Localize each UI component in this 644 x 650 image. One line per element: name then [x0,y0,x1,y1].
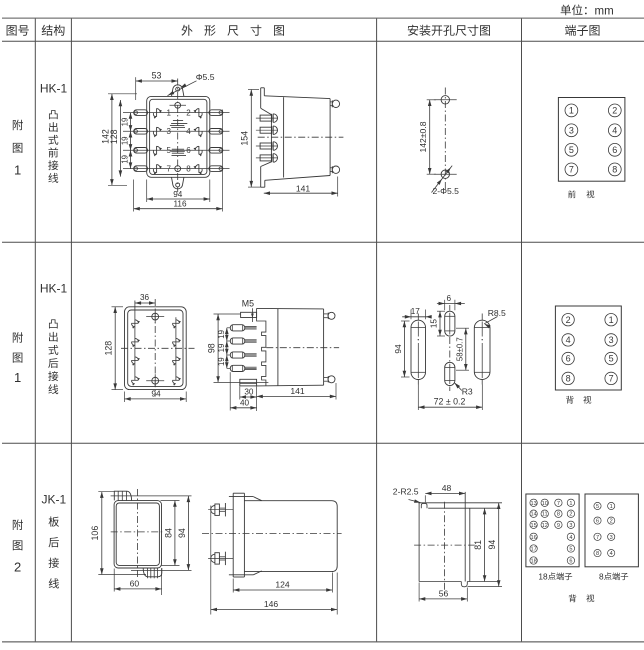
svg-text:58±0.7: 58±0.7 [455,337,464,361]
svg-text:2: 2 [612,106,617,116]
svg-text:1: 1 [610,504,613,510]
svg-text:94: 94 [151,389,161,399]
svg-text:141: 141 [290,386,305,396]
svg-text:48: 48 [442,483,452,493]
svg-text:128: 128 [109,129,119,144]
svg-text:12: 12 [542,523,548,529]
svg-text:2: 2 [610,519,613,525]
svg-text:3: 3 [609,335,614,345]
svg-text:HK-1: HK-1 [40,82,68,96]
svg-text:2-R2.5: 2-R2.5 [393,487,419,497]
svg-text:7: 7 [569,165,574,175]
svg-text:7: 7 [557,501,560,507]
svg-text:15: 15 [530,523,536,529]
svg-text:M5: M5 [242,299,254,309]
svg-text:116: 116 [173,199,186,208]
svg-text:2: 2 [566,315,571,325]
svg-text:3: 3 [610,535,613,541]
svg-text:16: 16 [530,535,536,541]
svg-text:13: 13 [530,501,536,507]
svg-text:7: 7 [609,374,614,384]
svg-text:36: 36 [140,293,150,302]
svg-text:5: 5 [596,504,599,510]
svg-text:1: 1 [14,162,21,177]
svg-text:1: 1 [569,501,572,507]
svg-text:17: 17 [411,307,421,316]
svg-text:94: 94 [177,528,187,538]
svg-text:124: 124 [275,580,290,590]
svg-text:1: 1 [569,106,574,116]
svg-text:1: 1 [609,315,614,325]
svg-text:8: 8 [566,374,571,384]
svg-text:5: 5 [569,145,574,155]
svg-text:4: 4 [569,535,572,541]
svg-text:18: 18 [538,571,548,581]
svg-text:1: 1 [166,109,171,118]
svg-text:19: 19 [121,118,130,127]
svg-text:19: 19 [121,155,130,164]
svg-text:40: 40 [240,399,250,408]
svg-text:2: 2 [14,559,21,574]
svg-text:3: 3 [569,523,572,529]
svg-text:128: 128 [104,341,114,356]
svg-text:19: 19 [217,330,226,339]
svg-text:72 ± 0.2: 72 ± 0.2 [434,397,466,407]
svg-text:56: 56 [439,588,449,598]
svg-text:60: 60 [130,579,140,589]
svg-text:17: 17 [530,547,536,553]
svg-text:1: 1 [14,370,21,385]
svg-text:10: 10 [542,501,548,507]
svg-text:94: 94 [487,540,497,550]
svg-text:4: 4 [186,127,191,136]
svg-text:8: 8 [186,165,191,174]
svg-text:2: 2 [569,512,572,518]
svg-text:6: 6 [566,354,571,364]
svg-text:2: 2 [186,109,191,118]
svg-text:19: 19 [217,357,226,366]
svg-text:18: 18 [530,559,536,565]
svg-text:84: 84 [163,528,173,538]
svg-text:6: 6 [569,559,572,565]
svg-text:94: 94 [393,344,403,354]
svg-text:94: 94 [173,190,183,199]
svg-text:19: 19 [217,344,226,353]
svg-text:6: 6 [186,146,191,155]
svg-text:5: 5 [609,354,614,364]
svg-text:15: 15 [430,319,439,329]
svg-text:14: 14 [530,512,536,518]
svg-text:4: 4 [610,551,613,557]
svg-text:6: 6 [596,519,599,525]
svg-text:5: 5 [569,547,572,553]
svg-text:7: 7 [596,535,599,541]
svg-text:8: 8 [612,165,617,175]
svg-text:JK-1: JK-1 [41,493,66,507]
svg-text:30: 30 [244,388,254,397]
svg-text:98: 98 [206,343,216,353]
svg-text:R3: R3 [462,386,473,396]
svg-text:8: 8 [557,512,560,518]
svg-text:19: 19 [121,136,130,145]
svg-text:Φ5.5: Φ5.5 [196,72,215,82]
svg-text:141: 141 [296,183,311,193]
svg-text:142±0.8: 142±0.8 [418,121,428,152]
svg-text:3: 3 [569,126,574,136]
svg-text:4: 4 [612,126,617,136]
svg-text:R8.5: R8.5 [488,308,506,318]
svg-text:mm: mm [595,5,614,17]
svg-text:8: 8 [596,551,599,557]
svg-text:3: 3 [166,127,171,136]
svg-text:9: 9 [557,523,560,529]
svg-text:106: 106 [90,526,100,541]
svg-text:11: 11 [542,512,548,518]
svg-text:2-Φ5.5: 2-Φ5.5 [433,186,460,196]
svg-text:6: 6 [447,294,452,303]
svg-text:53: 53 [152,71,162,81]
svg-text:8: 8 [599,571,604,581]
svg-text:154: 154 [240,131,250,146]
svg-text:81: 81 [473,540,483,550]
svg-text:7: 7 [166,165,171,174]
svg-text:146: 146 [264,599,279,609]
svg-text:HK-1: HK-1 [40,282,68,296]
svg-text:4: 4 [566,335,571,345]
svg-text:6: 6 [612,145,617,155]
svg-text:5: 5 [166,146,171,155]
